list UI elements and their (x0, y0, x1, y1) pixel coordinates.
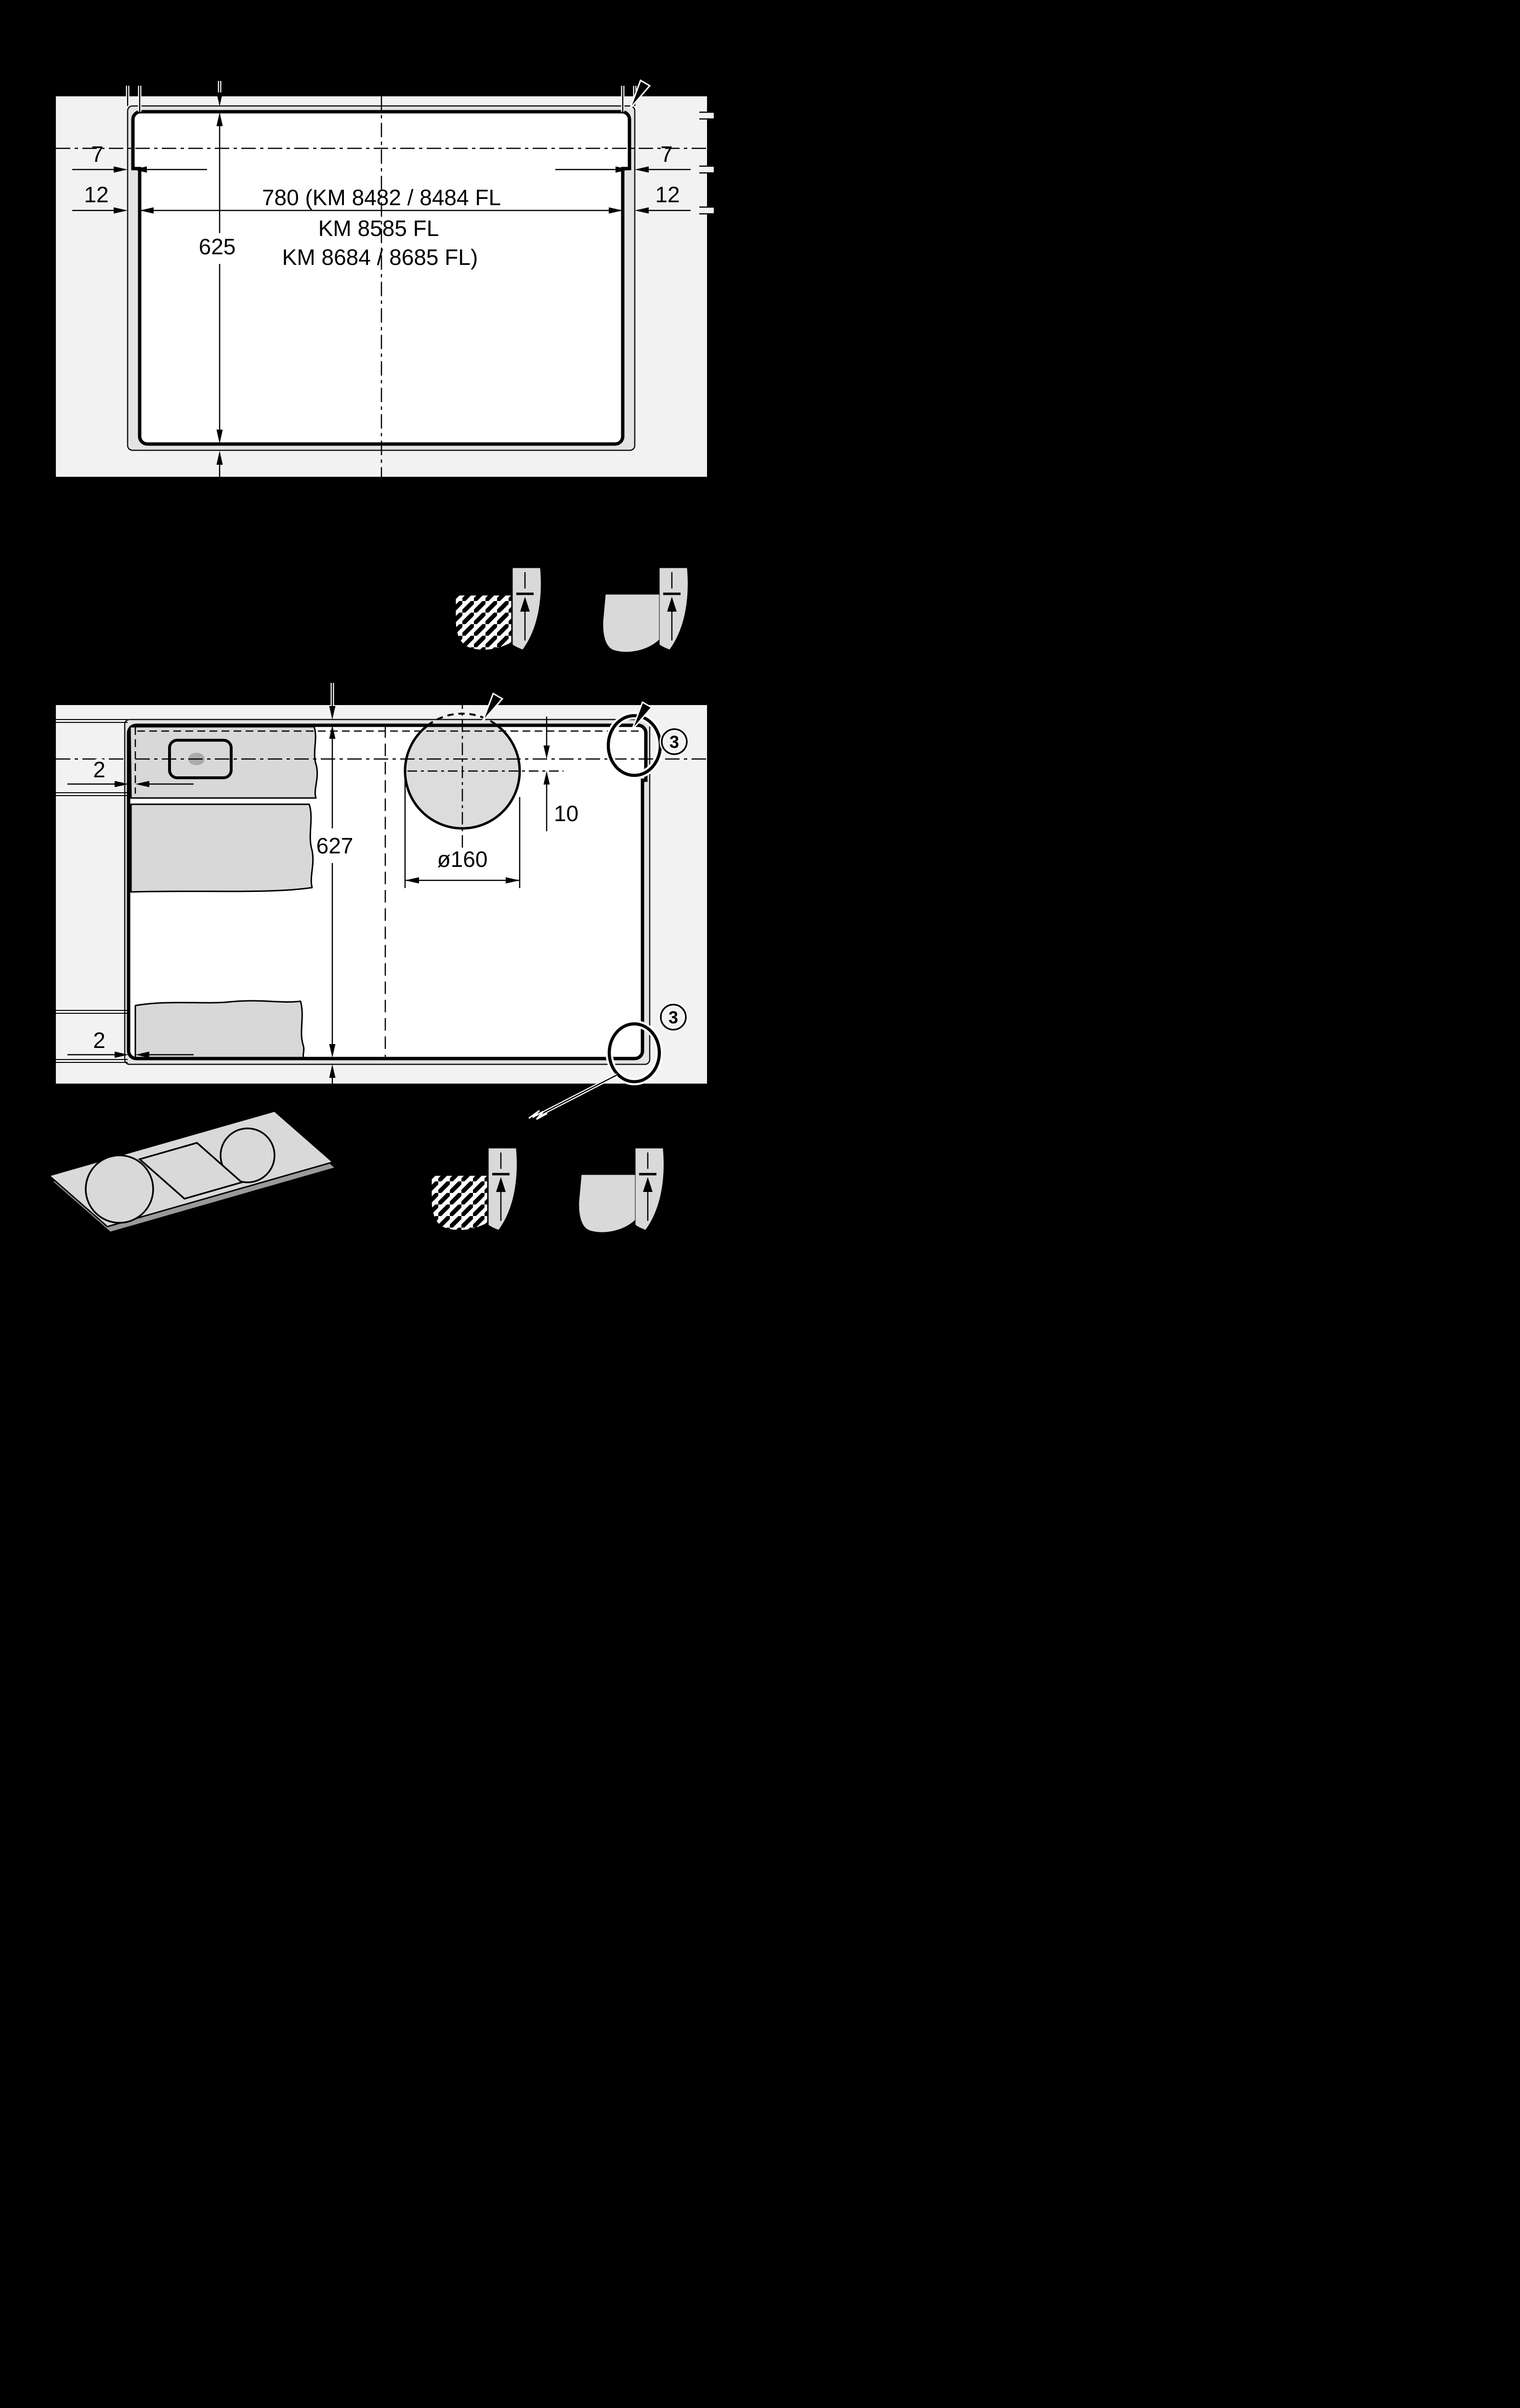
dim-label-625: 625 (199, 234, 236, 259)
dim-label-7-left: 7 (91, 142, 104, 167)
plain-quarter-section-icon (603, 568, 688, 652)
dim-label-12-right: 12 (655, 182, 680, 207)
corner-section-icons-bottom (431, 1149, 663, 1232)
installation-diagram-page: 7 7 12 12 780 (KM 8482 / 8484 FL KM 8585… (0, 0, 760, 1233)
dim-label-780-models: 780 (KM 8482 / 8484 FL (262, 185, 501, 210)
hatched-quarter-section-icon (455, 568, 540, 651)
glass-fragment-bottom-left (135, 1001, 304, 1058)
dim-label-627: 627 (316, 833, 354, 858)
dim-label-2-top: 2 (93, 757, 105, 782)
hatched-quarter-section-icon-2 (431, 1149, 516, 1231)
corner-section-icons-middle (455, 568, 687, 652)
dim-label-10: 10 (554, 801, 578, 826)
detail-marker-3-bottom: 3 (668, 1008, 678, 1027)
models-line2: KM 8585 FL (318, 216, 439, 241)
burner-circle-left (86, 1155, 153, 1223)
cooktop-product-icon (49, 1111, 336, 1232)
models-line3: KM 8684 / 8685 FL) (282, 245, 478, 270)
top-cutout-diagram: 7 7 12 12 780 (KM 8482 / 8484 FL KM 8585… (56, 80, 714, 477)
plain-quarter-section-icon-2 (579, 1149, 664, 1232)
diagram-canvas: 7 7 12 12 780 (KM 8482 / 8484 FL KM 8585… (0, 0, 760, 1233)
dim-label-diameter: ø160 (437, 847, 488, 872)
detail-marker-3-top: 3 (669, 732, 679, 752)
bottom-cutout-diagram: 10 ø160 627 (56, 683, 707, 1119)
dim-label-2-bottom: 2 (93, 1028, 105, 1053)
dim-label-12-left: 12 (84, 182, 108, 207)
dim-label-7-right: 7 (660, 142, 673, 167)
glass-fragment-top-left (130, 727, 317, 892)
